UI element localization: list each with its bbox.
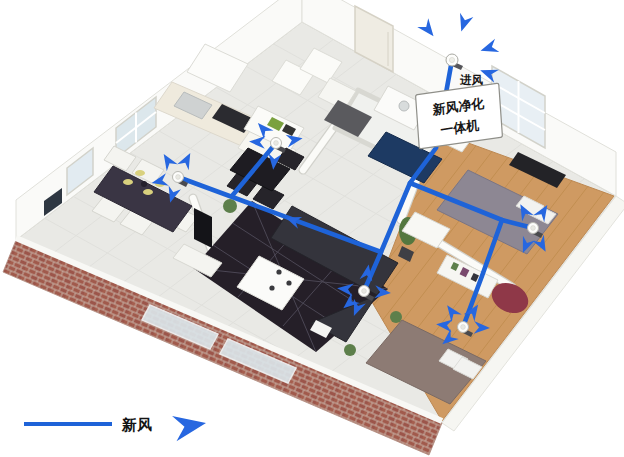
fresh-air-system-floorplan: 进风 新风净化 一体机 新风 bbox=[0, 0, 624, 457]
legend: 新风 bbox=[24, 410, 208, 441]
fresh-air-unit-label: 新风净化 一体机 bbox=[416, 83, 503, 149]
dining-bowl bbox=[141, 181, 147, 187]
legend-label: 新风 bbox=[121, 416, 152, 433]
intake-label: 进风 bbox=[459, 74, 484, 86]
unit-label-box bbox=[416, 83, 503, 149]
bathroom-sink bbox=[399, 101, 409, 111]
legend-arrow-icon bbox=[172, 410, 208, 441]
plant bbox=[390, 311, 402, 323]
plant bbox=[344, 344, 356, 356]
floorplan-rendering: 进风 新风净化 一体机 新风 bbox=[0, 0, 624, 457]
